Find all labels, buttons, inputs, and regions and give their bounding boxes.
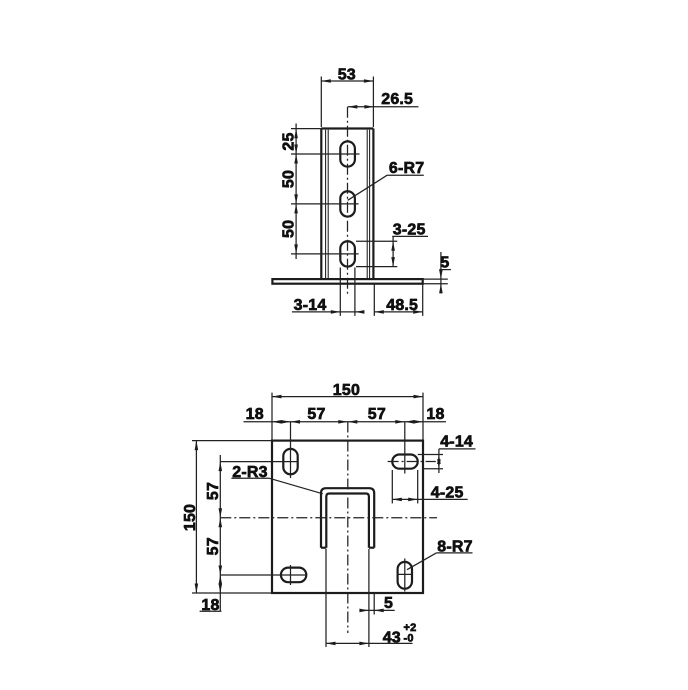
svg-text:6-R7: 6-R7 [389, 160, 424, 177]
svg-text:5: 5 [440, 254, 449, 271]
svg-text:48.5: 48.5 [386, 297, 418, 314]
svg-text:18: 18 [246, 406, 264, 423]
svg-text:57: 57 [205, 482, 222, 500]
svg-text:4-14: 4-14 [440, 434, 473, 451]
svg-text:150: 150 [182, 504, 199, 531]
svg-text:57: 57 [205, 537, 222, 555]
svg-text:43: 43 [383, 629, 401, 646]
svg-text:25: 25 [281, 132, 298, 150]
svg-text:50: 50 [281, 220, 298, 238]
svg-text:3-14: 3-14 [294, 297, 327, 314]
svg-text:18: 18 [426, 406, 444, 423]
svg-text:26.5: 26.5 [381, 91, 413, 108]
svg-text:150: 150 [333, 382, 360, 399]
svg-text:53: 53 [338, 66, 356, 83]
svg-text:57: 57 [368, 406, 386, 423]
svg-text:50: 50 [281, 170, 298, 188]
svg-text:5: 5 [384, 595, 393, 612]
svg-text:-0: -0 [404, 633, 414, 645]
svg-text:57: 57 [307, 406, 325, 423]
